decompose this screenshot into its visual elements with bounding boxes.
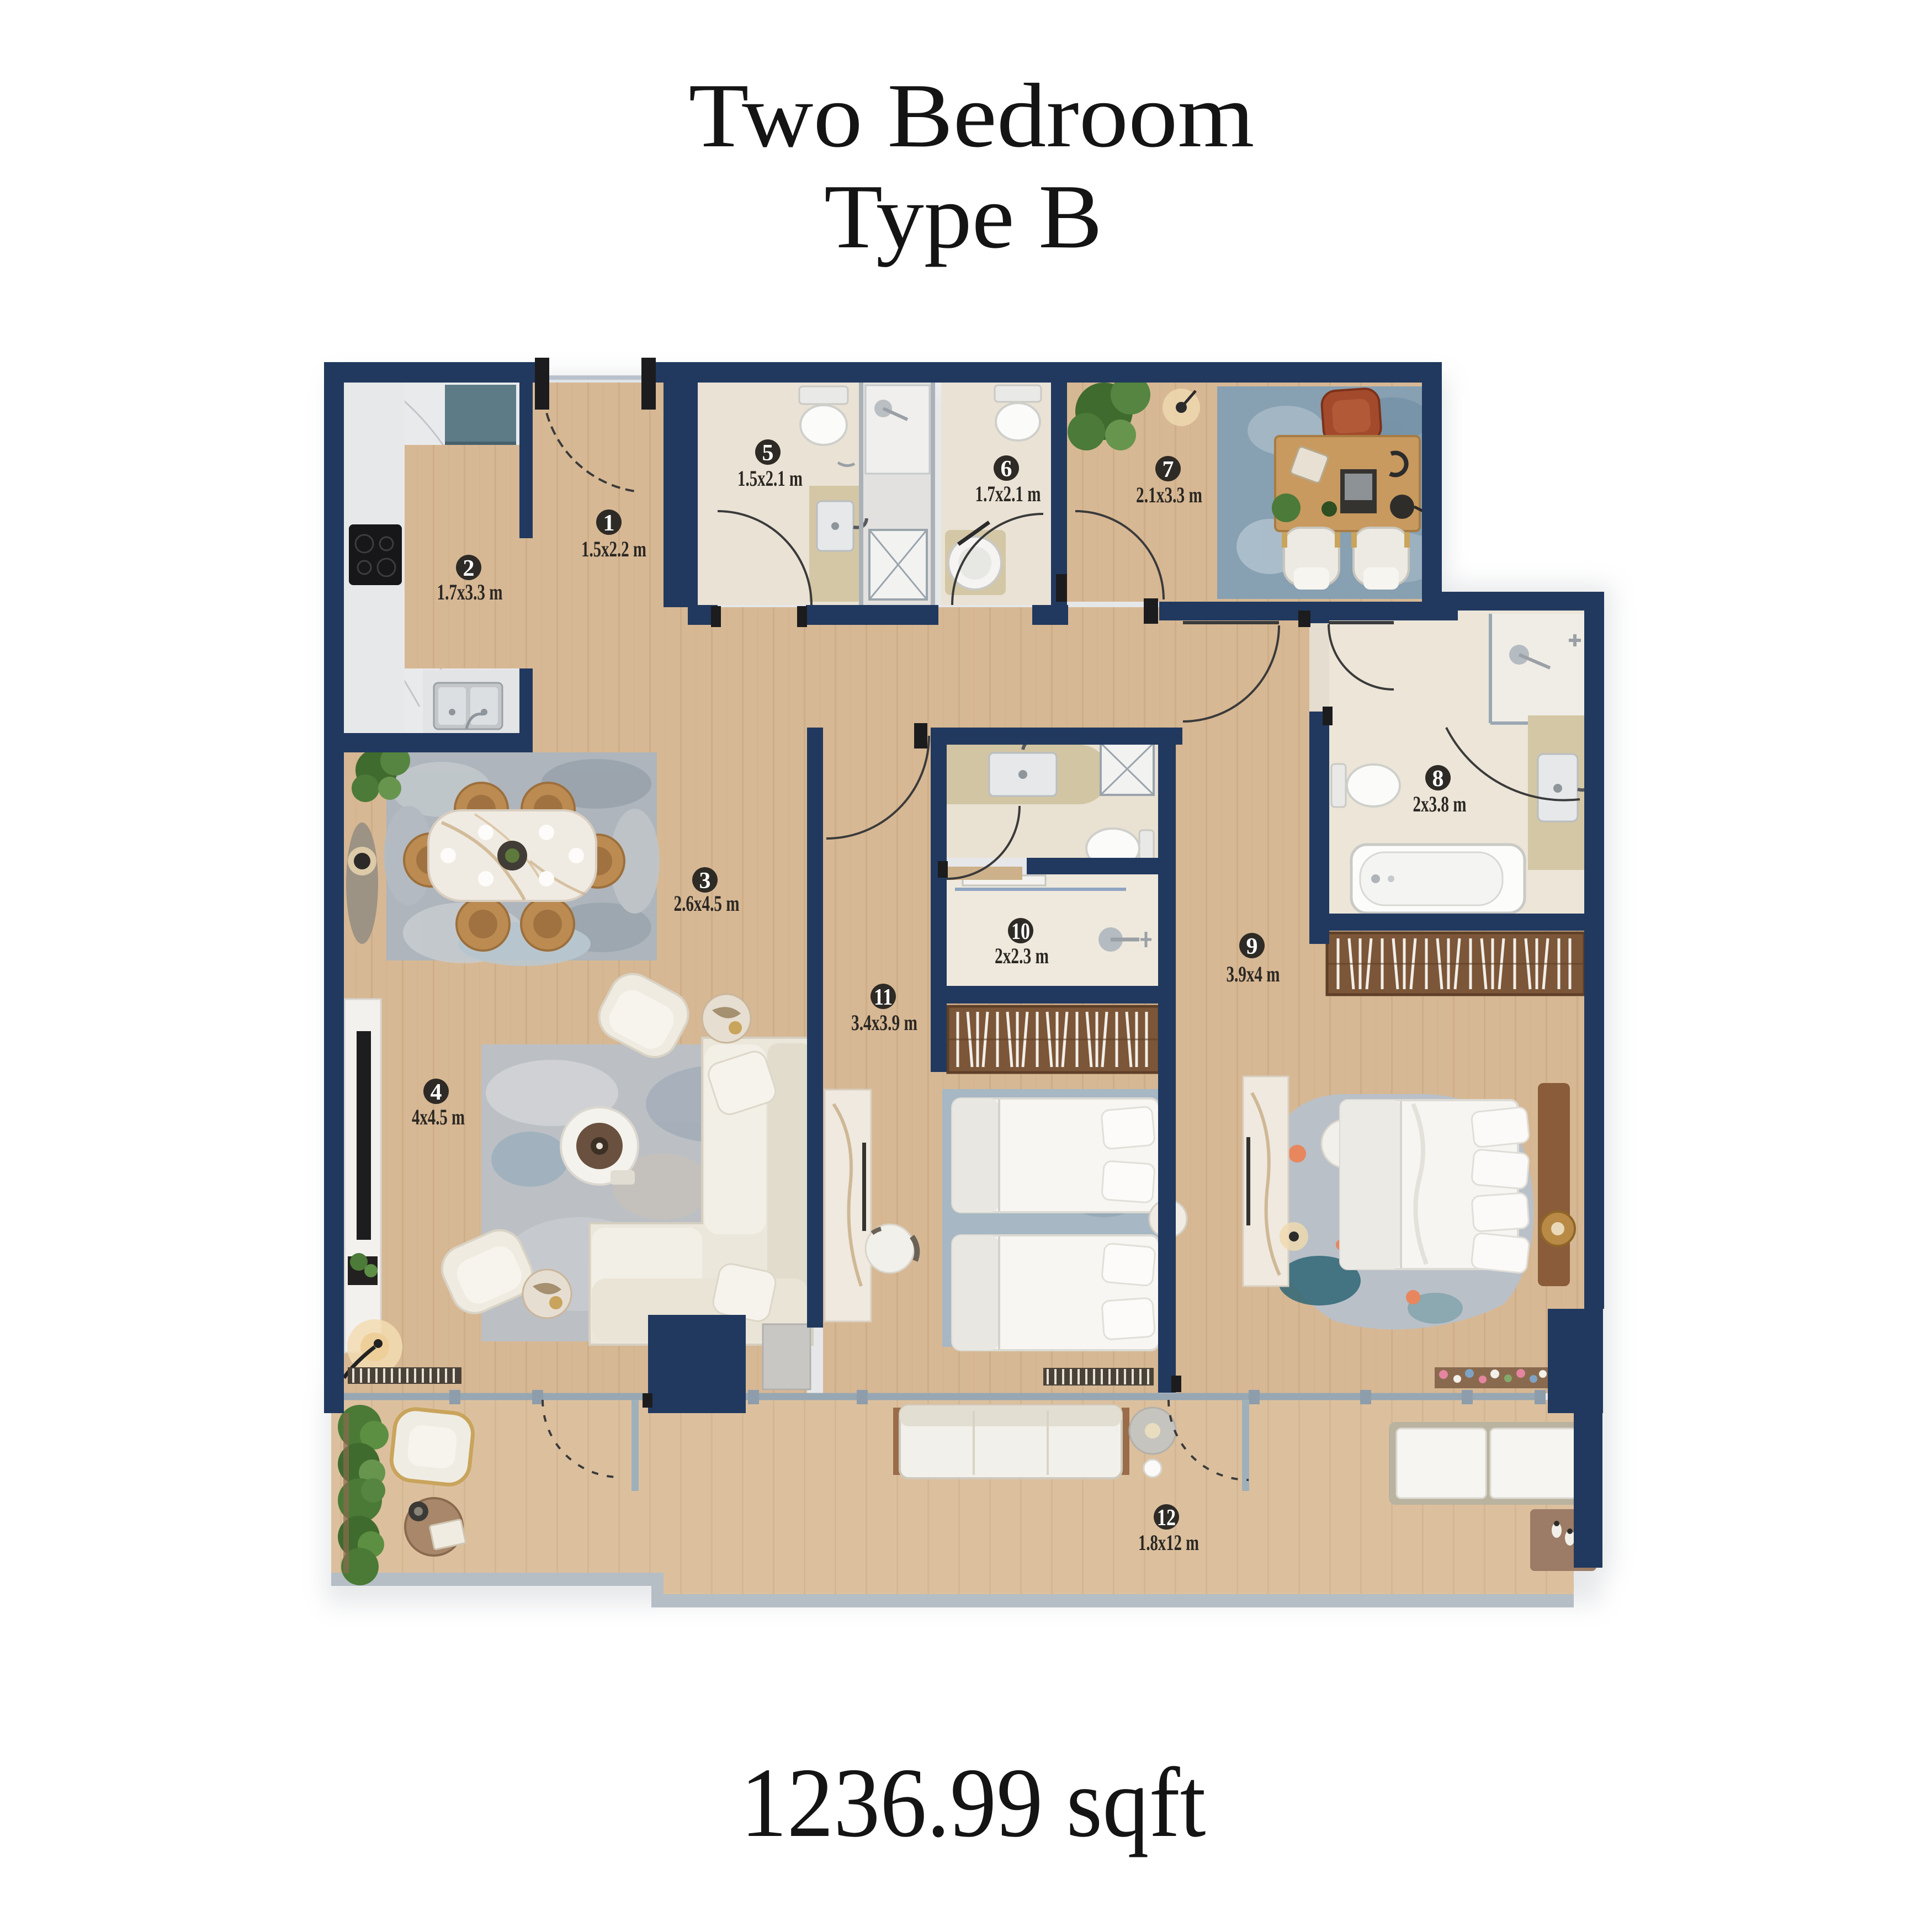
svg-text:12: 12: [1157, 1505, 1176, 1531]
svg-text:Two Bedroom: Two Bedroom: [689, 65, 1255, 166]
svg-text:4: 4: [431, 1080, 442, 1105]
svg-text:10: 10: [1011, 919, 1030, 944]
svg-text:1: 1: [603, 511, 615, 536]
svg-text:Type B: Type B: [824, 166, 1102, 267]
svg-text:1.5x2.1 m: 1.5x2.1 m: [737, 466, 803, 491]
svg-text:3.9x4 m: 3.9x4 m: [1227, 962, 1280, 986]
svg-text:1.7x3.3 m: 1.7x3.3 m: [437, 580, 503, 604]
svg-text:2x3.8 m: 2x3.8 m: [1413, 792, 1467, 816]
svg-text:6: 6: [1001, 457, 1012, 482]
svg-text:1.7x2.1 m: 1.7x2.1 m: [975, 481, 1041, 506]
svg-text:2.6x4.5 m: 2.6x4.5 m: [674, 891, 740, 916]
svg-text:3.4x3.9 m: 3.4x3.9 m: [851, 1010, 917, 1035]
svg-text:2: 2: [463, 556, 475, 581]
svg-text:4x4.5 m: 4x4.5 m: [412, 1105, 465, 1129]
svg-text:2x2.3 m: 2x2.3 m: [995, 943, 1049, 968]
svg-text:3: 3: [699, 868, 711, 894]
svg-text:11: 11: [874, 985, 893, 1010]
svg-text:7: 7: [1163, 457, 1174, 482]
svg-text:1.8x12 m: 1.8x12 m: [1138, 1530, 1199, 1555]
svg-text:8: 8: [1432, 766, 1444, 792]
svg-text:1236.99 sqft: 1236.99 sqft: [741, 1748, 1206, 1857]
svg-text:1.5x2.2 m: 1.5x2.2 m: [581, 537, 646, 561]
svg-text:9: 9: [1246, 934, 1258, 959]
svg-text:5: 5: [762, 440, 774, 466]
svg-text:2.1x3.3 m: 2.1x3.3 m: [1136, 482, 1202, 507]
